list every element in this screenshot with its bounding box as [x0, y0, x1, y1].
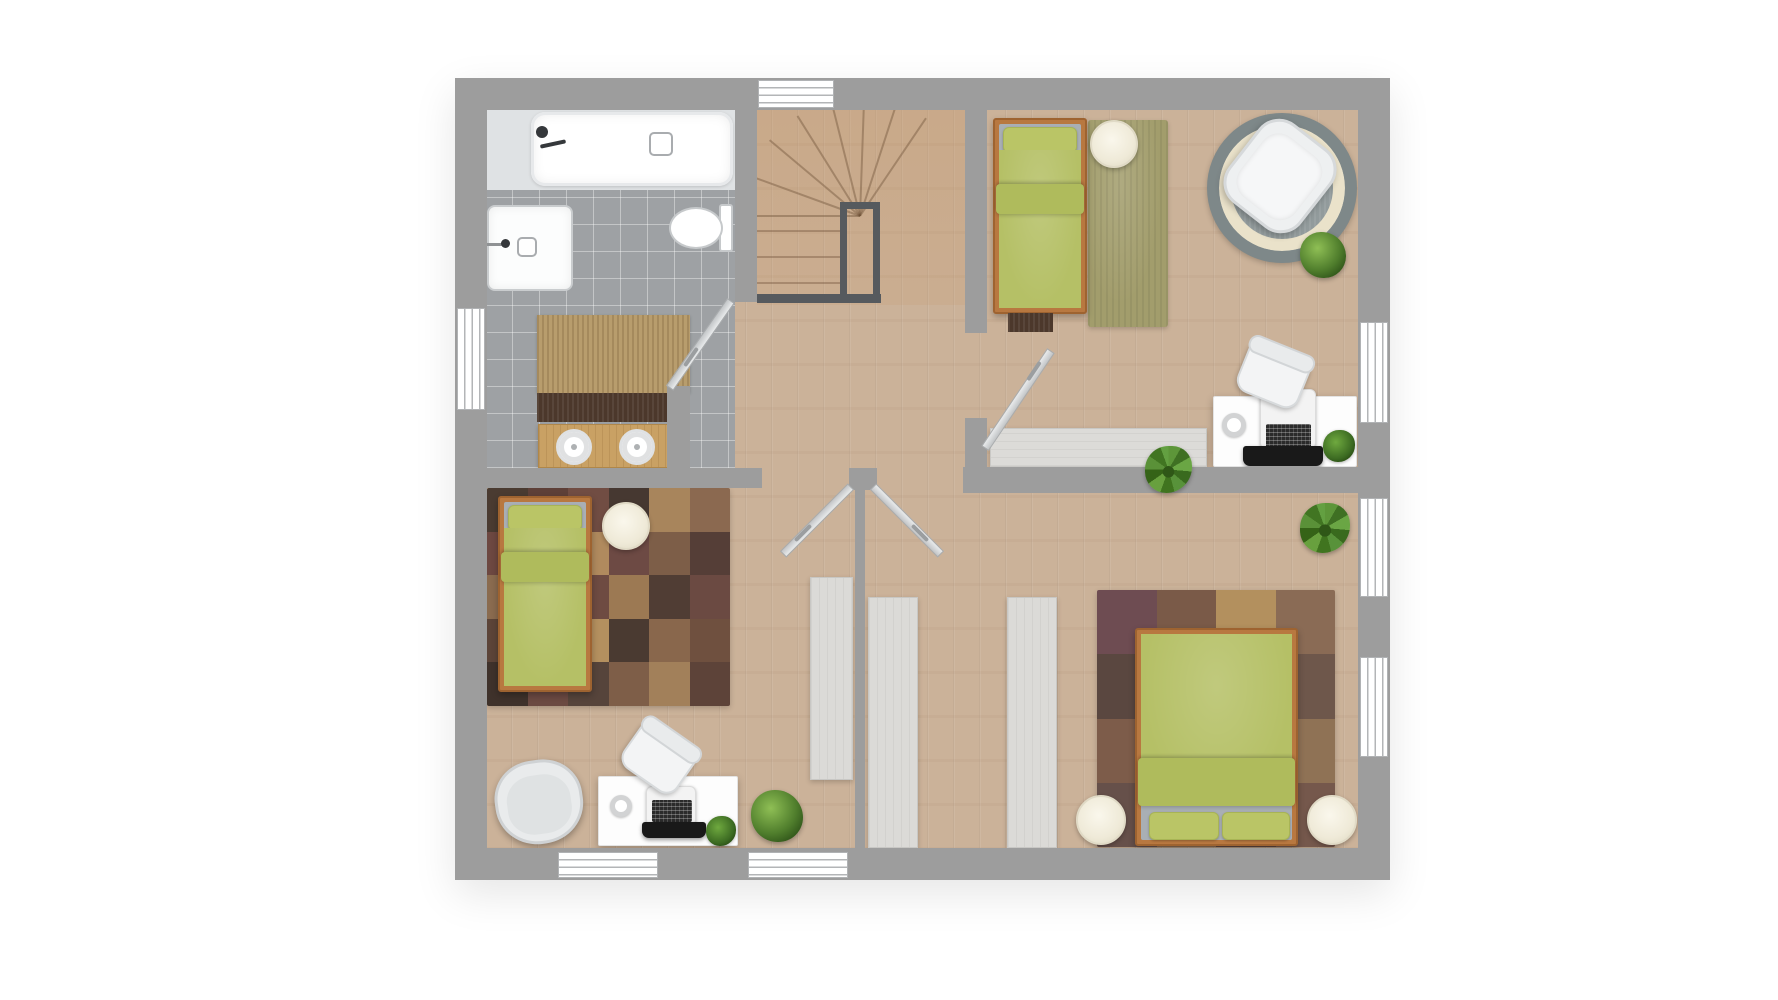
wardrobe-bedroom3-a — [868, 597, 918, 848]
floor-plan — [0, 0, 1778, 1000]
bathtub-drain — [649, 132, 673, 156]
bedroom2-patch-rug-patch-24 — [690, 619, 731, 663]
bedroom2-patch-rug-patch-17 — [649, 575, 690, 619]
stair-rail-bottom — [757, 294, 881, 303]
stair-tread-1 — [757, 230, 843, 232]
window-right-1 — [1360, 322, 1388, 423]
wall-top — [455, 78, 1390, 110]
bedroom2-patch-rug-patch-28 — [609, 662, 650, 706]
wall-bathroom-east — [735, 108, 757, 302]
vanity-sink-left — [556, 429, 592, 465]
bedroom2-patch-rug-patch-11 — [649, 532, 690, 576]
wall-bedroom1-west-lower — [965, 418, 987, 493]
bed3-pillow-right — [1222, 812, 1290, 840]
plant-bedroom2-floor — [751, 790, 803, 842]
wall-bedroom-divider — [855, 488, 865, 850]
bed1-foot-mat — [1008, 313, 1053, 332]
wall-bathroom-door-stub — [667, 386, 690, 470]
pouf-bedroom3-right — [1307, 795, 1357, 845]
bedroom2-patch-rug-patch-29 — [649, 662, 690, 706]
bedroom2-patch-rug-patch-22 — [609, 619, 650, 663]
stair-tread-3 — [757, 282, 843, 284]
wall-bathroom-south — [455, 468, 762, 488]
bed1-duvet — [999, 150, 1081, 308]
shower-faucet-icon — [501, 239, 510, 248]
bedroom2-patch-rug-patch-16 — [609, 575, 650, 619]
window-right-3 — [1360, 657, 1388, 757]
bedroom2-patch-rug-patch-6 — [690, 488, 731, 532]
bathroom-rug — [537, 315, 690, 393]
window-bottom-1 — [558, 852, 658, 878]
bed2-duvet-fold — [501, 552, 589, 582]
bedroom2-patch-rug-patch-18 — [690, 575, 731, 619]
wardrobe-bedroom3-b — [1007, 597, 1057, 848]
bed3-duvet-fold — [1138, 758, 1295, 806]
toilet-bowl — [669, 207, 723, 249]
page: { "meta": { "label": "Upper floor plan w… — [0, 0, 1778, 1000]
vanity-sink-right — [619, 429, 655, 465]
bathtub-faucet-icon — [536, 126, 548, 138]
window-left — [457, 308, 485, 410]
bed1-duvet-fold — [996, 184, 1084, 214]
window-bottom-2 — [748, 852, 848, 878]
wall-bedroom1-west-upper — [965, 108, 987, 333]
bedroom2-patch-rug-patch-30 — [690, 662, 731, 706]
window-right-2 — [1360, 498, 1388, 597]
laptop2-base — [642, 822, 706, 838]
stair-railing — [840, 202, 880, 303]
bedroom2-patch-rug-patch-12 — [690, 532, 731, 576]
pouf-bedroom3-left — [1076, 795, 1126, 845]
bedroom2-patch-rug-patch-5 — [649, 488, 690, 532]
plant-round-rug — [1300, 232, 1346, 278]
stair-tread-2 — [757, 256, 843, 258]
pouf-bedroom1 — [1090, 120, 1138, 168]
mug-desk1 — [1222, 413, 1246, 437]
bedroom2-patch-rug-patch-23 — [649, 619, 690, 663]
laptop2-keyboard — [652, 800, 692, 822]
shower-drain — [517, 237, 537, 257]
laptop1-base — [1243, 446, 1323, 466]
mug-desk2 — [610, 795, 632, 817]
bed3-pillow-left — [1149, 812, 1219, 840]
bathtub — [531, 112, 733, 186]
window-top — [758, 80, 834, 108]
wardrobe-bedroom2 — [810, 577, 853, 780]
laptop1-keyboard — [1266, 424, 1311, 448]
pouf-bedroom2 — [602, 502, 650, 550]
